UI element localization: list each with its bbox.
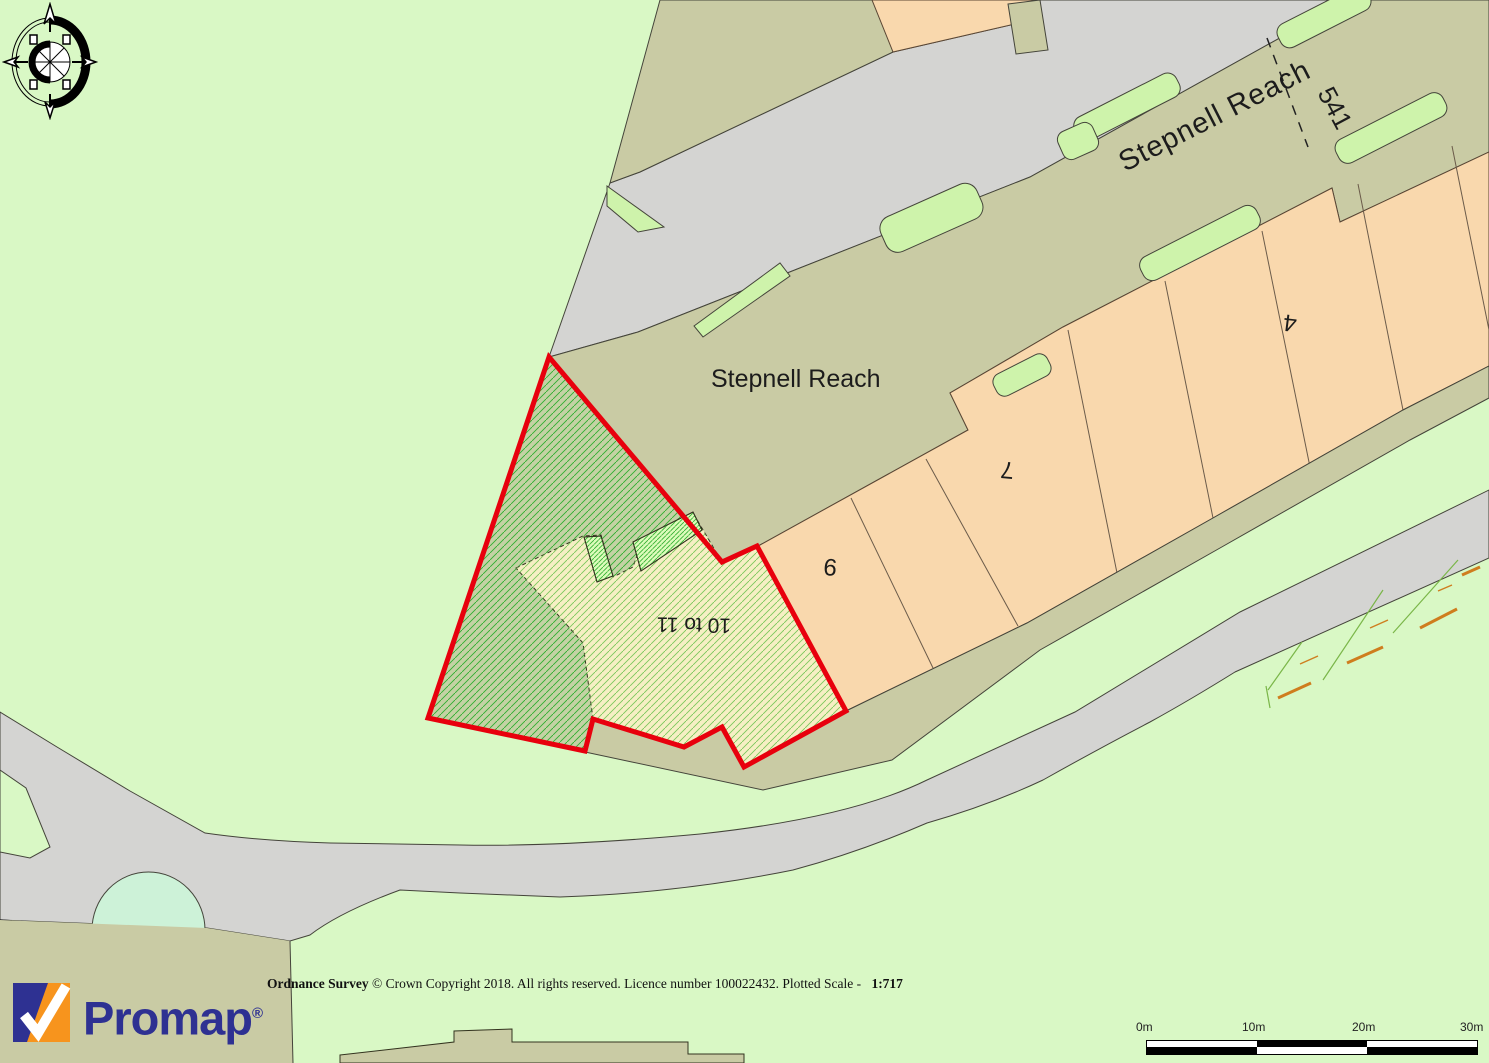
- registered-mark: ®: [252, 1005, 262, 1022]
- map-viewport: Stepnell Reach 541 Stepnell Reach 4 7 9 …: [0, 0, 1489, 1063]
- street-label-horizontal: Stepnell Reach: [711, 365, 881, 393]
- compass-rose-icon: [2, 2, 102, 120]
- copyright-text: © Crown Copyright 2018. All rights reser…: [369, 976, 865, 991]
- copyright-os: Ordnance Survey: [267, 976, 369, 991]
- scale-bar: 0m 10m 20m 30m: [1134, 1020, 1486, 1056]
- house-number-7: 7: [1000, 455, 1016, 483]
- scale-10m: 10m: [1242, 1020, 1265, 1034]
- plotted-scale-value: 1:717: [871, 976, 903, 991]
- promap-wordmark: Promap®: [83, 983, 262, 1050]
- plot-label-10-to-11: 10 to 11: [657, 612, 732, 636]
- scale-20m: 20m: [1352, 1020, 1375, 1034]
- scale-0m: 0m: [1136, 1020, 1153, 1034]
- scale-30m: 30m: [1460, 1020, 1483, 1034]
- house-number-9: 9: [823, 552, 839, 580]
- copyright-line: Ordnance Survey © Crown Copyright 2018. …: [267, 976, 903, 992]
- promap-logo: Promap®: [13, 983, 262, 1051]
- promap-text: Promap: [83, 992, 252, 1045]
- promap-logo-icon: [13, 983, 71, 1043]
- scale-bar-graphic: [1146, 1040, 1478, 1055]
- ordnance-survey-map: Stepnell Reach 541 Stepnell Reach 4 7 9 …: [0, 0, 1489, 1063]
